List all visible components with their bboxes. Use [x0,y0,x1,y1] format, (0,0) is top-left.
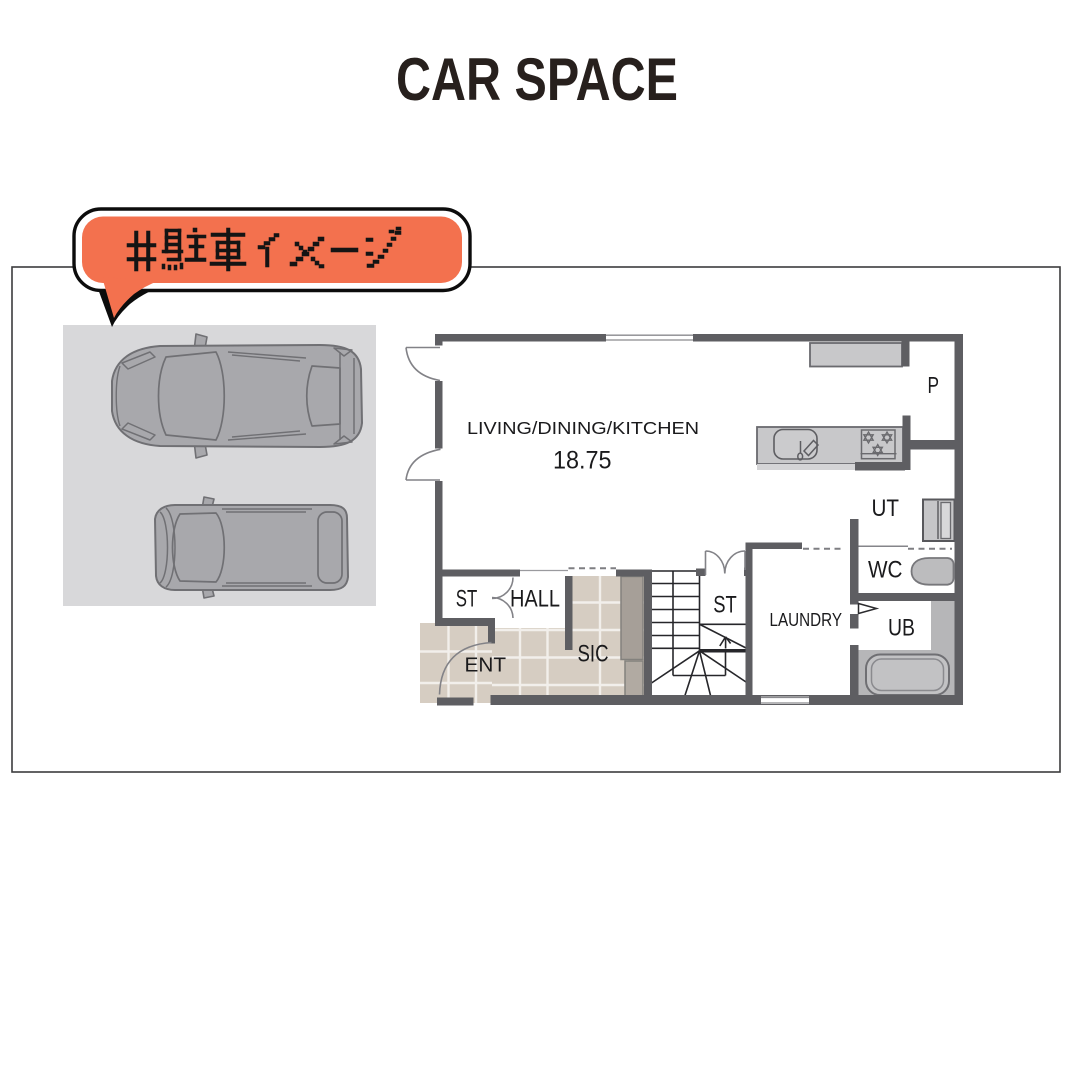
svg-text:CAR SPACE: CAR SPACE [396,45,678,113]
svg-text:LAUNDRY: LAUNDRY [770,609,843,630]
svg-text:SIC: SIC [578,641,609,668]
svg-text:HALL: HALL [510,586,560,613]
svg-text:ST: ST [713,592,737,619]
svg-text:ENT: ENT [465,654,507,677]
svg-text:UB: UB [888,615,915,642]
svg-text:LIVING/DINING/KITCHEN: LIVING/DINING/KITCHEN [467,418,699,438]
svg-text:18.75: 18.75 [553,447,612,475]
svg-text:UT: UT [872,495,900,522]
svg-text:P: P [928,372,940,398]
svg-text:ST: ST [456,586,478,613]
svg-text:WC: WC [868,557,903,584]
